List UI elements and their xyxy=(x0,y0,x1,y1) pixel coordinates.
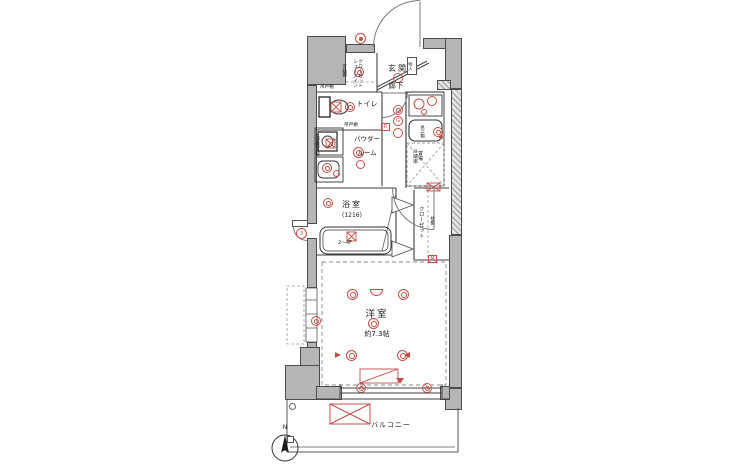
powder-outlet-icon xyxy=(356,160,365,169)
room-speaker-right-icon xyxy=(397,350,408,361)
room-downlight-right-icon xyxy=(398,289,409,300)
closet-label: クローゼット xyxy=(417,197,426,247)
balcony-drain-icon xyxy=(289,403,296,410)
balcony-label: バルコニー xyxy=(364,421,418,429)
genkan-storage-label: 物入 xyxy=(408,59,417,74)
corridor-outlet-icon xyxy=(393,128,403,138)
corridor-label: 廊下 xyxy=(384,81,408,90)
bath-light-icon xyxy=(323,198,333,208)
window-shutter-right-icon xyxy=(422,383,432,393)
north-label: N xyxy=(280,424,290,431)
balcony-tap-icon xyxy=(287,436,294,443)
fridge-label: 冷蔵庫 置場 xyxy=(412,146,426,166)
room-downlight-left-icon xyxy=(347,289,358,300)
sic-shelf-label: 可動棚 xyxy=(341,60,348,82)
bath-label: 浴室 xyxy=(338,200,366,210)
north-compass-icon xyxy=(272,435,298,461)
powder-room-label-2: ルーム xyxy=(351,150,383,158)
basin-outlet-icon xyxy=(333,170,340,177)
sic-label: シューズイン クローゼット xyxy=(352,54,368,92)
kitchen-light-icon xyxy=(433,127,443,137)
floorplan-canvas: G R 3 M 玄関 シューズイン クローゼット 可動棚 トイレ 吊戸棚 吊戸棚… xyxy=(0,0,730,470)
left-outside-dashed xyxy=(287,286,304,344)
basin-light-icon xyxy=(322,163,332,173)
bath-floor-label: 2〜4F xyxy=(332,241,358,247)
bath-size-label: (1216) xyxy=(336,212,368,219)
left-window xyxy=(306,288,317,342)
corridor-light-icon xyxy=(393,105,403,115)
laundry-label: 洗濯機置場 xyxy=(314,130,322,160)
room-speaker-left-icon xyxy=(346,350,357,361)
room-label: 洋室 xyxy=(360,309,394,320)
powder-room-label-1: パウダー xyxy=(348,136,386,144)
kitchen-cupboard-label: 吊戸棚 xyxy=(419,121,427,143)
door-number-icon: 3 xyxy=(296,228,307,239)
wall-outlet-icon xyxy=(311,316,321,326)
toilet-label: トイレ xyxy=(352,100,382,108)
meter-box-icon: M xyxy=(428,255,437,263)
gas-meter-icon: G xyxy=(393,116,403,126)
side-door-leaf xyxy=(292,220,308,227)
doorbell-icon xyxy=(355,33,366,44)
room-window-marker xyxy=(360,369,404,384)
remote-panel-icon: R xyxy=(381,123,390,131)
hanging-cupboard-label-2: 吊戸棚 xyxy=(344,123,370,129)
window-shutter-left-icon xyxy=(356,383,366,393)
room-dashed-outline xyxy=(322,262,446,385)
closet-shelf-label: 枕棚 xyxy=(429,212,437,228)
hanging-cupboard-label-1: 吊戸棚 xyxy=(320,85,346,91)
toilet-fixture xyxy=(319,97,348,117)
room-size-label: 約7.3帖 xyxy=(356,330,398,338)
